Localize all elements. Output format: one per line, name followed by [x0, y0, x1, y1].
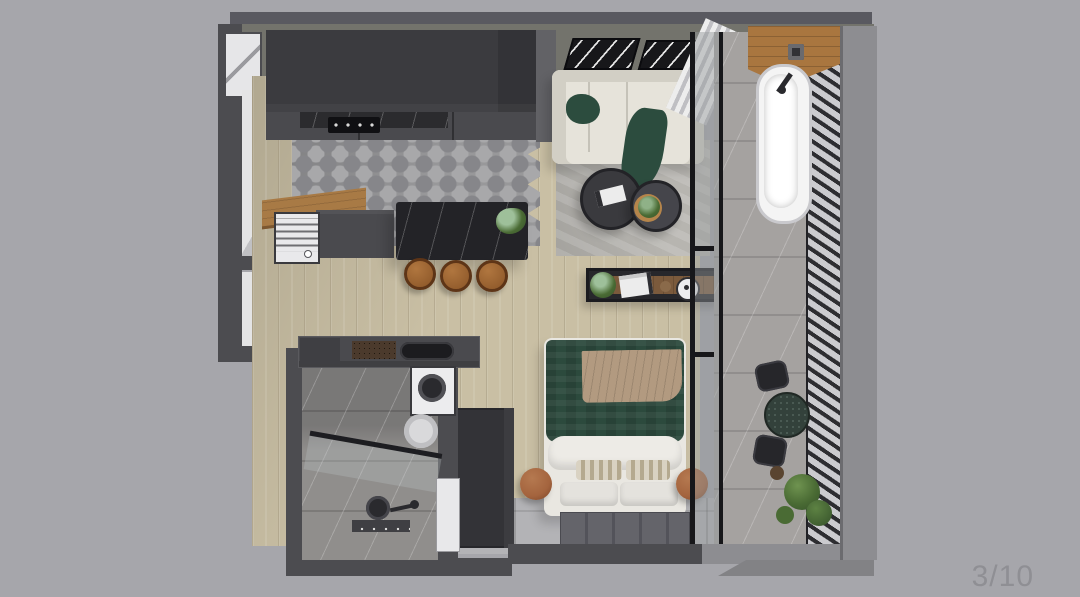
bathtub-faucet-knob — [778, 86, 786, 94]
glass-frame-bar — [690, 246, 714, 251]
balcony-plant-2 — [806, 500, 832, 526]
bathroom-wall-bottom — [286, 558, 512, 576]
console-clock-center — [684, 285, 689, 290]
counter-faucet — [788, 44, 804, 60]
side-counter — [316, 210, 394, 258]
table-plant — [638, 196, 660, 218]
console-deco — [660, 281, 671, 292]
bathtub-basin — [764, 74, 798, 208]
vanity-sink — [400, 342, 454, 360]
washing-machine-door — [418, 374, 446, 402]
wardrobe — [452, 408, 514, 548]
wall-art-frame-1 — [563, 38, 640, 70]
balcony-chair-2 — [752, 433, 789, 468]
console-books — [619, 272, 654, 298]
bar-stool-2 — [440, 260, 472, 292]
shower-head — [366, 496, 390, 520]
bathroom-door — [436, 478, 460, 552]
bar-stool-1 — [404, 258, 436, 290]
fridge-knob — [304, 250, 312, 258]
striped-pillow-2 — [626, 460, 670, 480]
vanity-mat — [352, 341, 396, 359]
pouf-left — [520, 468, 552, 500]
balcony-plant-3 — [776, 506, 794, 524]
console-plant — [590, 272, 616, 298]
striped-pillow-1 — [576, 460, 622, 480]
glass-frame-bar — [690, 352, 714, 357]
floor-drain — [352, 520, 410, 532]
gallery-photo-viewer: 3/10 — [0, 0, 1080, 597]
green-throw-pillow — [566, 94, 600, 124]
entry-wall-bottom — [508, 544, 704, 564]
bar-stool-3 — [476, 260, 508, 292]
shower-knob — [410, 500, 419, 509]
kitchen-cabinets — [266, 30, 538, 114]
floor-plan-render — [0, 0, 1080, 597]
balcony-table — [764, 392, 810, 438]
glass-partition — [690, 32, 723, 546]
cooktop — [328, 117, 380, 133]
toilet — [404, 414, 438, 448]
gallery-page-indicator: 3/10 — [972, 560, 1034, 594]
white-pillow-1 — [560, 482, 618, 506]
plant-pot — [770, 466, 784, 480]
tan-bed-throw — [582, 349, 683, 403]
mini-fridge — [274, 212, 320, 264]
vanity-cabinet — [300, 338, 340, 364]
white-pillow-2 — [620, 482, 678, 506]
right-outer-wall — [840, 26, 877, 560]
